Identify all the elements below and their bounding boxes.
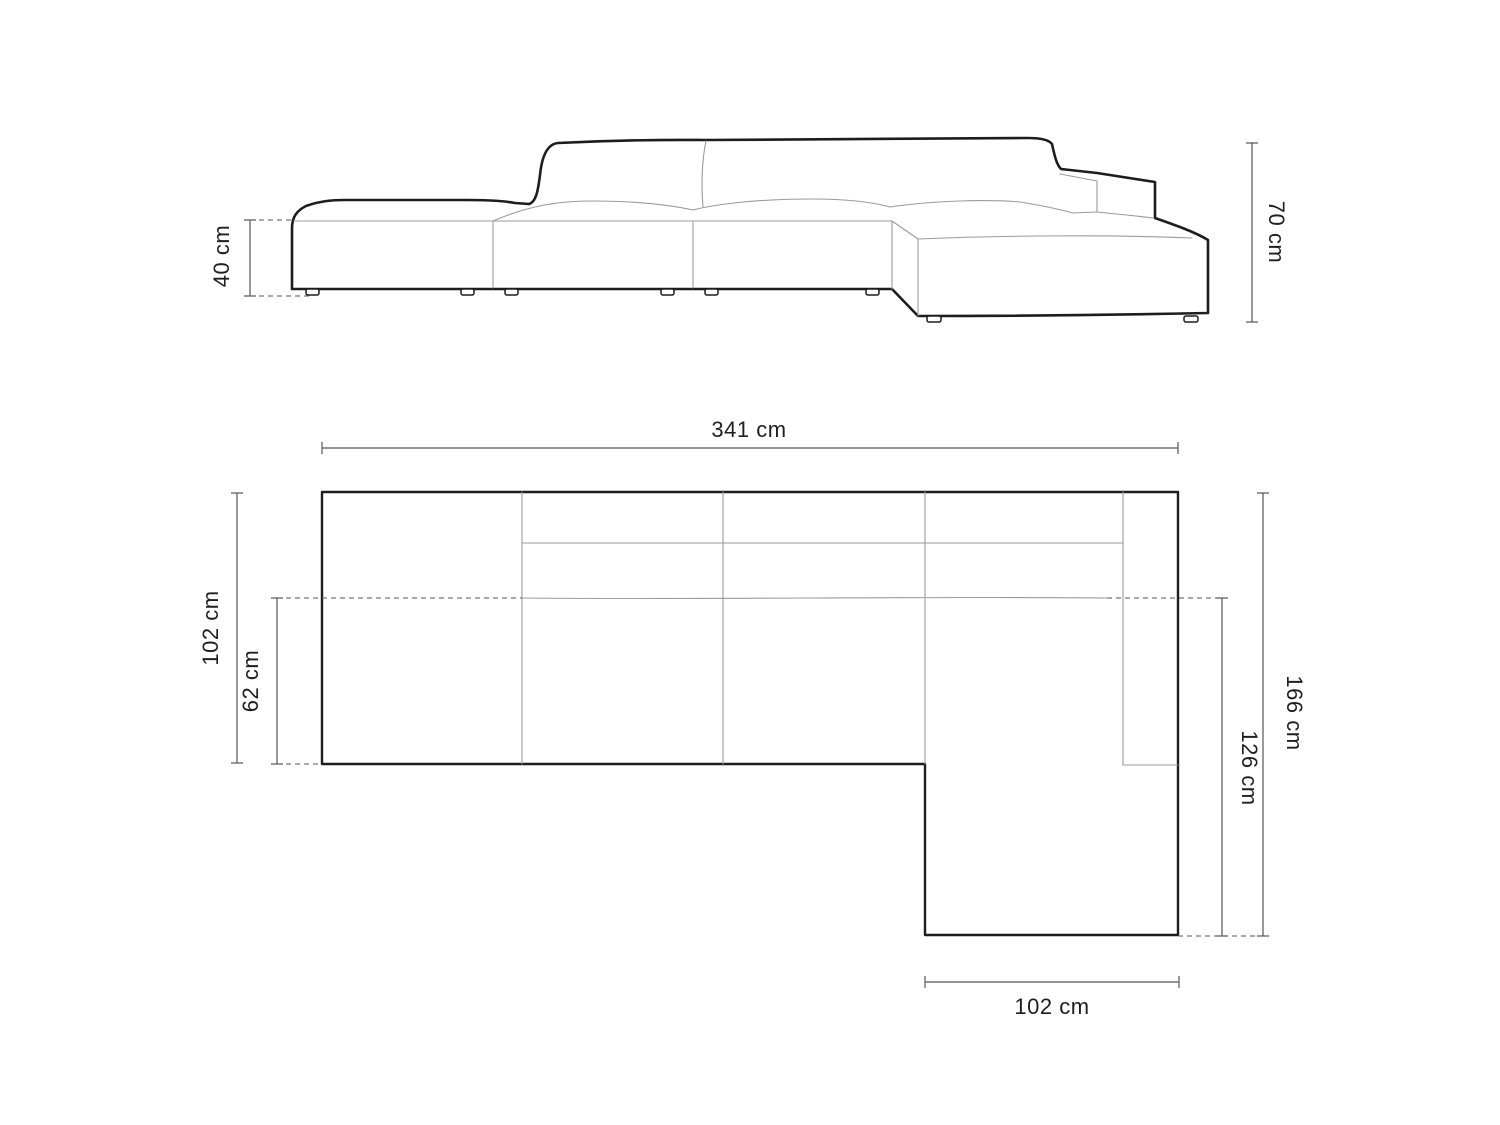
diagram-svg: 40 cm 70 cm xyxy=(0,0,1500,1125)
sofa-foot xyxy=(461,289,474,295)
plan-seat-front-line xyxy=(522,597,1107,598)
sofa-foot xyxy=(661,289,674,295)
elevation-armrest-inner-top xyxy=(1060,174,1097,181)
front-elevation-view: 40 cm 70 cm xyxy=(209,138,1289,322)
top-plan-view: 341 cm 102 cm 62 cm 166 cm xyxy=(198,417,1307,1019)
dimension-total-width: 341 cm xyxy=(322,417,1178,454)
dimension-label-total-width: 341 cm xyxy=(711,417,786,442)
elevation-chaise-seat-front-edge xyxy=(918,236,1192,239)
sofa-dimension-diagram: 40 cm 70 cm xyxy=(0,0,1500,1125)
dimension-label-chaise-width: 102 cm xyxy=(1014,994,1089,1019)
elevation-sofa-outline xyxy=(292,138,1208,316)
dimension-label-total-height: 70 cm xyxy=(1264,201,1289,263)
sofa-foot xyxy=(866,289,879,295)
dimension-label-seat-depth: 62 cm xyxy=(238,650,263,712)
sofa-foot xyxy=(705,289,718,295)
elevation-seat-cushion-arc-2 xyxy=(693,199,890,210)
elevation-chaise-cushion-line xyxy=(890,201,1097,213)
elevation-backrest-seam xyxy=(702,141,706,207)
elevation-chaise-corner-top-edge xyxy=(892,221,918,239)
dimension-chaise-width: 102 cm xyxy=(925,976,1179,1019)
dimension-label-total-depth: 102 cm xyxy=(198,590,223,665)
elevation-armrest-lower-edge xyxy=(1097,212,1153,218)
dimension-label-chaise-length: 126 cm xyxy=(1237,730,1262,805)
dimension-total-height: 70 cm xyxy=(1246,143,1289,322)
dimension-total-depth: 102 cm xyxy=(198,493,243,763)
sofa-foot xyxy=(505,289,518,295)
dimension-seat-depth: 62 cm xyxy=(238,598,283,764)
dimension-seat-height: 40 cm xyxy=(209,220,310,296)
dimension-chaise-length: 126 cm xyxy=(1216,598,1262,936)
sofa-foot xyxy=(306,289,319,295)
dimension-label-depth-with-chaise: 166 cm xyxy=(1282,675,1307,750)
sofa-foot xyxy=(927,316,941,322)
dimension-depth-with-chaise: 166 cm xyxy=(1257,493,1307,936)
plan-sofa-outline xyxy=(322,492,1178,935)
dimension-label-seat-height: 40 cm xyxy=(209,225,234,287)
sofa-foot xyxy=(1184,316,1198,322)
